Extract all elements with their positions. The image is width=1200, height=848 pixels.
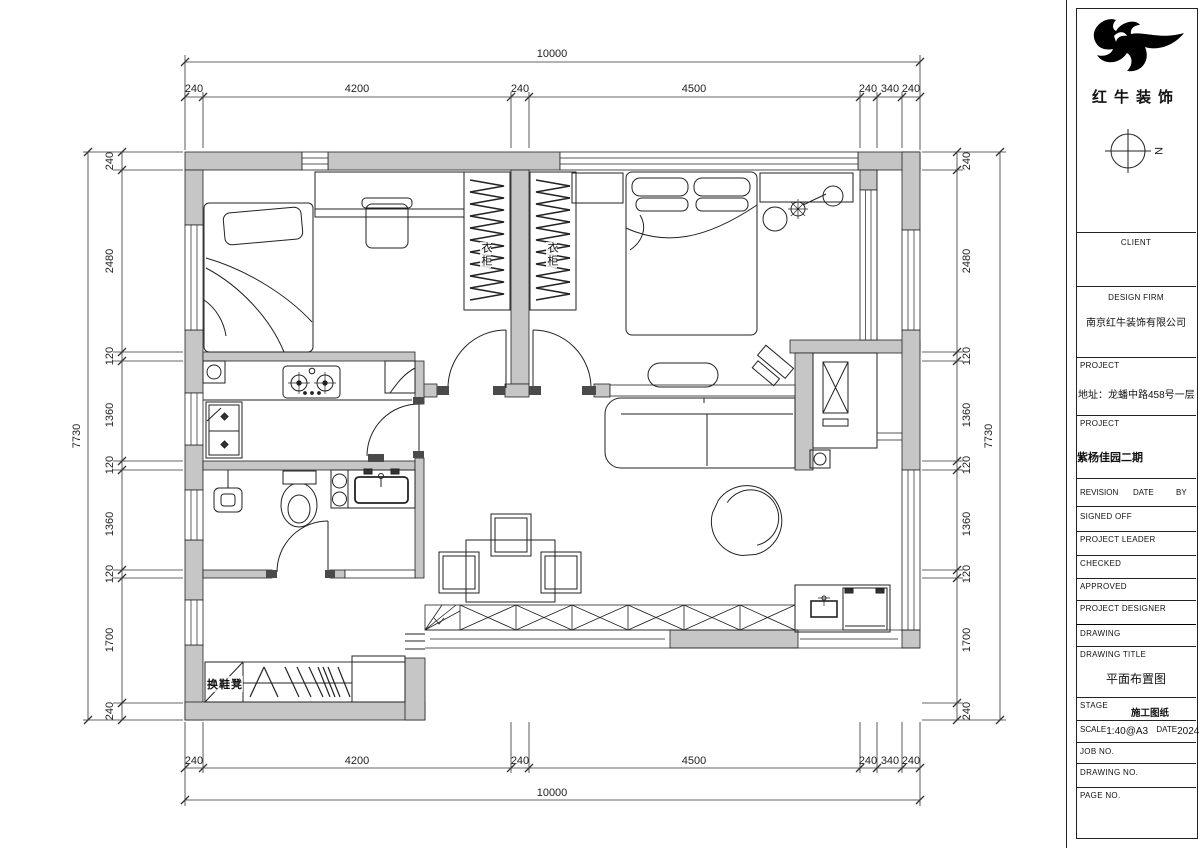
dim-top-seg: 240 — [859, 83, 877, 95]
wardrobe-2 — [530, 172, 576, 310]
project-leader-label: PROJECT LEADER — [1080, 535, 1192, 544]
dim-bottom-seg: 240 — [185, 755, 203, 767]
kitchen-counter — [203, 361, 415, 400]
north-arrow-icon: N — [1100, 122, 1170, 180]
page-no-label: PAGE NO. — [1080, 791, 1192, 800]
tb-separator — [1076, 478, 1196, 479]
drawing-title-label: DRAWING TITLE — [1080, 650, 1192, 659]
dim-left-seg: 240 — [104, 152, 116, 170]
wardrobe-1 — [464, 172, 510, 310]
project-designer-label: PROJECT DESIGNER — [1080, 604, 1192, 613]
dim-bottom-seg: 240 — [902, 755, 920, 767]
tb-separator — [1076, 697, 1196, 698]
shelf — [572, 173, 623, 203]
tb-separator — [1076, 646, 1196, 647]
dim-left-seg: 1360 — [104, 512, 116, 536]
dim-top-seg: 240 — [185, 83, 203, 95]
dim-left-overall: 7730 — [71, 424, 83, 448]
dim-bottom-seg: 4200 — [345, 755, 369, 767]
dim-left-seg: 120 — [104, 456, 116, 474]
dim-right-seg: 1360 — [961, 512, 973, 536]
toilet — [281, 471, 317, 527]
design-firm-label: DESIGN FIRM — [1080, 293, 1192, 302]
dim-right-seg: 2480 — [961, 249, 973, 273]
tb-separator — [1076, 555, 1196, 556]
tb-separator — [1076, 742, 1196, 743]
design-firm-name: 南京红牛装饰有限公司 — [1078, 314, 1194, 329]
floor-plan-drawing: 10000 240 4200 240 4500 240 340 240 1000… — [0, 0, 1070, 848]
dim-left-seg: 2480 — [104, 249, 116, 273]
dim-bottom-seg: 240 — [511, 755, 529, 767]
desk — [315, 172, 464, 217]
tb-separator — [1076, 578, 1196, 579]
balcony-cabinet — [425, 605, 795, 630]
tb-separator — [1076, 286, 1196, 287]
tb-separator — [1076, 531, 1196, 532]
logo-text: 红牛装饰 — [1076, 86, 1196, 107]
shoe-cabinet-hatch — [243, 662, 352, 702]
desk-chair — [362, 198, 412, 248]
drawing-label: DRAWING — [1080, 629, 1192, 638]
dining-chairs — [439, 514, 581, 593]
armchair — [697, 472, 795, 570]
approved-label: APPROVED — [1080, 582, 1192, 591]
dim-right-seg: 240 — [961, 702, 973, 720]
checked-label: CHECKED — [1080, 559, 1192, 568]
stage-value: 施工图纸 — [1110, 705, 1190, 719]
dim-right-overall: 7730 — [983, 424, 995, 448]
dim-right-seg: 1360 — [961, 403, 973, 427]
tb-separator — [1076, 357, 1196, 358]
furniture — [203, 172, 890, 702]
dim-left-seg: 1360 — [104, 403, 116, 427]
dim-left-seg: 120 — [104, 565, 116, 583]
scale-label: SCALE — [1080, 725, 1106, 734]
gas-stove — [283, 366, 340, 398]
fridge — [206, 402, 242, 458]
job-no-label: JOB NO. — [1080, 747, 1192, 756]
bed-single — [204, 203, 313, 352]
revision-by-label: BY — [1176, 488, 1187, 497]
tb-separator — [1076, 763, 1196, 764]
project-name: 紫杨佳园二期 — [1077, 449, 1193, 465]
dim-top-overall: 10000 — [537, 48, 568, 60]
date-label: DATE — [1156, 725, 1177, 734]
washbasin — [348, 469, 415, 508]
client-label: CLIENT — [1080, 238, 1192, 247]
shower — [214, 470, 242, 512]
tb-separator — [1076, 600, 1196, 601]
bath-shelf — [331, 470, 348, 508]
project-label-2: PROJECT — [1080, 419, 1192, 428]
dim-bottom-seg: 340 — [881, 755, 899, 767]
scale-value: 1:40@A3 — [1106, 726, 1148, 737]
project-address: 地址：龙蟠中路458号一层 — [1078, 386, 1194, 401]
dim-bottom-seg: 240 — [859, 755, 877, 767]
red-bull-logo-icon — [1080, 12, 1192, 82]
dim-right-seg: 120 — [961, 347, 973, 365]
dim-right-seg: 240 — [961, 152, 973, 170]
drawing-title-value: 平面布置图 — [1078, 670, 1194, 687]
date-value: 2024 — [1177, 726, 1199, 737]
dim-right-seg: 1700 — [961, 628, 973, 652]
sheet-divider — [1066, 0, 1067, 848]
scale-row: SCALE1:40@A3 DATE2024 — [1080, 724, 1192, 735]
bed-double — [626, 172, 757, 335]
svg-text:N: N — [1152, 147, 1164, 155]
dim-bottom-seg: 4500 — [682, 755, 706, 767]
project-label: PROJECT — [1080, 361, 1192, 370]
dim-left-seg: 240 — [104, 702, 116, 720]
tb-separator — [1076, 415, 1196, 416]
nightstand — [760, 173, 853, 231]
laundry — [795, 585, 890, 632]
drawing-no-label: DRAWING NO. — [1080, 768, 1192, 777]
dim-right-seg: 120 — [961, 456, 973, 474]
dim-top-seg: 4200 — [345, 83, 369, 95]
dim-bottom-overall: 10000 — [537, 787, 568, 799]
dim-right-seg: 120 — [961, 565, 973, 583]
dim-top-seg: 240 — [902, 83, 920, 95]
dim-left-seg: 1700 — [104, 628, 116, 652]
revision-label: REVISION — [1080, 488, 1118, 497]
shaft — [810, 353, 877, 468]
ottoman — [648, 363, 718, 387]
shoe-bench — [205, 662, 243, 702]
rug-decor — [749, 345, 793, 388]
tb-separator — [1076, 720, 1196, 721]
sofa — [605, 398, 795, 468]
dim-left-seg: 120 — [104, 347, 116, 365]
dim-top-seg: 240 — [511, 83, 529, 95]
dim-top-seg: 4500 — [682, 83, 706, 95]
tb-separator — [1076, 506, 1196, 507]
tb-separator — [1076, 232, 1196, 233]
signed-off-label: SIGNED OFF — [1080, 512, 1192, 521]
revision-date-label: DATE — [1133, 488, 1154, 497]
tb-separator — [1076, 787, 1196, 788]
doors — [277, 330, 591, 649]
tb-separator — [1076, 624, 1196, 625]
entry-cabinet — [352, 656, 405, 702]
floor-plan-sheet: 10000 240 4200 240 4500 240 340 240 1000… — [0, 0, 1200, 848]
dim-top-seg: 340 — [881, 83, 899, 95]
